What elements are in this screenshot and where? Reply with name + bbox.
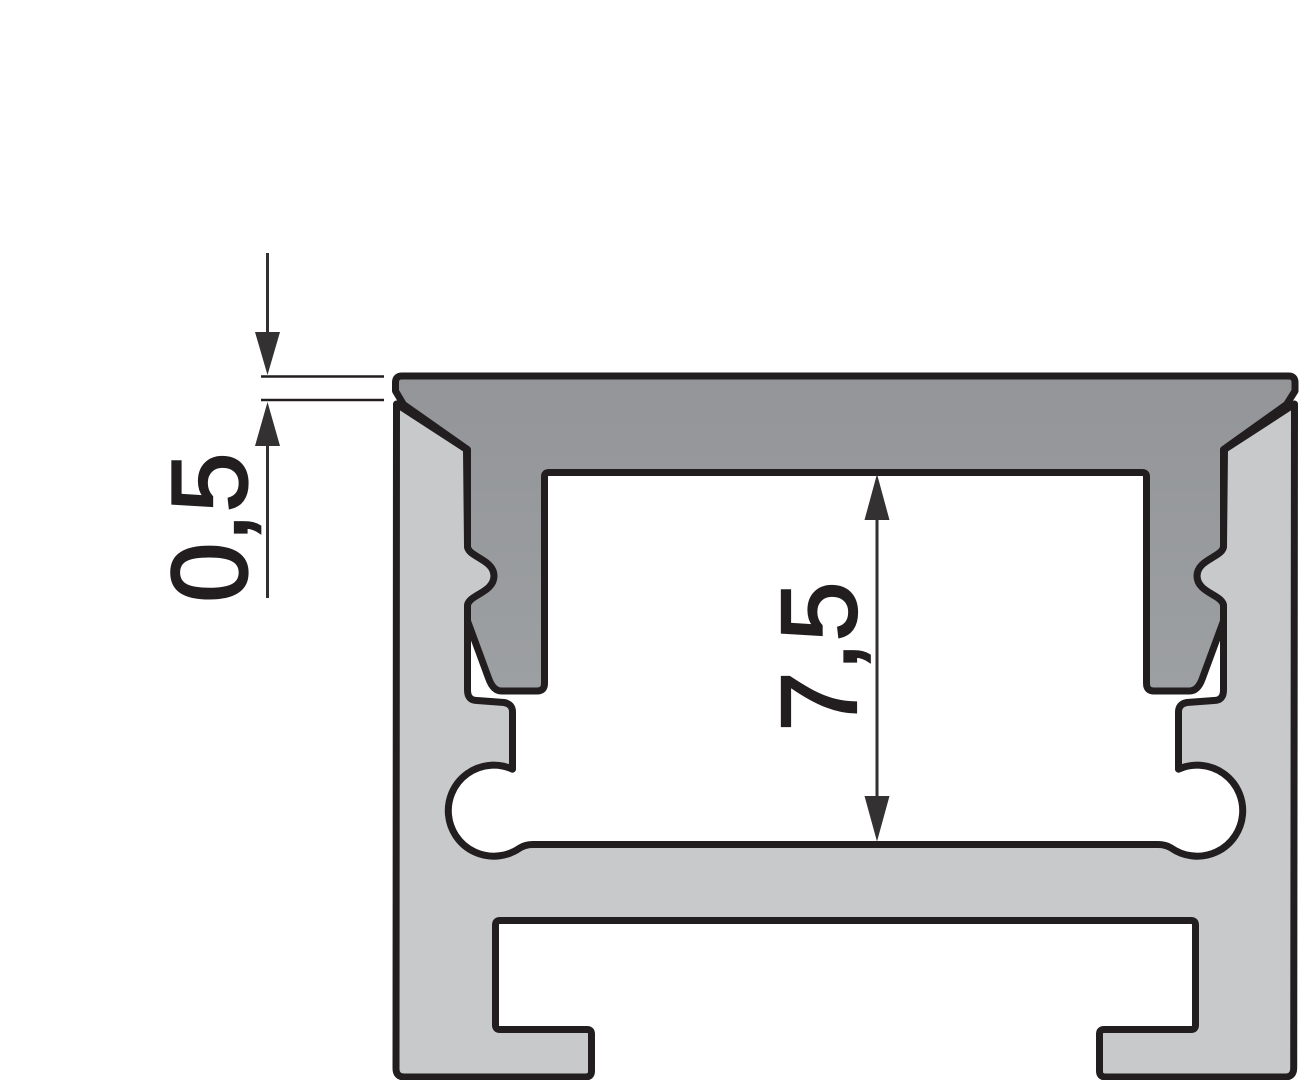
svg-text:7,5: 7,5 xyxy=(758,581,879,731)
svg-text:0,5: 0,5 xyxy=(149,452,270,602)
